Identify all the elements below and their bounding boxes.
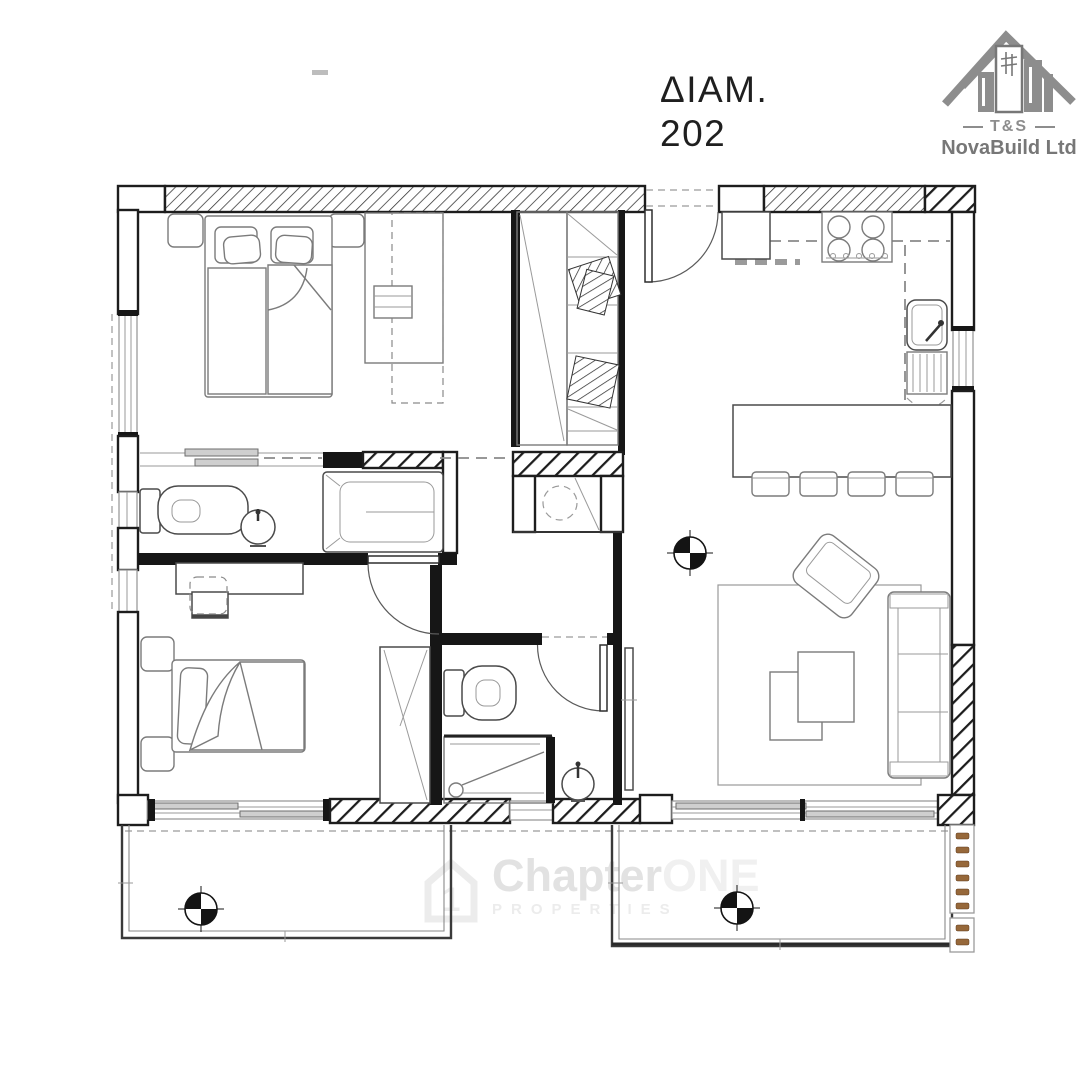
armchair <box>789 530 883 622</box>
bathroom-door <box>538 645 608 711</box>
wardrobe-master <box>365 213 443 403</box>
floor-plan <box>0 0 1080 1080</box>
bathtub <box>323 472 443 552</box>
window-bedroom2-bottom <box>148 799 330 821</box>
bedroom-second <box>141 563 430 803</box>
top-wall <box>118 186 975 212</box>
window-kitchen-right <box>952 326 974 391</box>
floorplan-page: ΔΙΑΜ. 202 T&S NovaBuild Ltd 1 <box>0 0 1080 1080</box>
kitchen-island <box>733 405 951 477</box>
toilet-ensuite <box>140 486 248 534</box>
window-bedroom2-left <box>119 570 137 612</box>
master-bedroom <box>168 213 443 403</box>
bathroom-main <box>444 666 594 803</box>
window-master-left <box>118 310 138 438</box>
closet-clothes-3 <box>567 356 619 408</box>
louver-strip <box>950 825 974 952</box>
hall-closet-shelves <box>567 212 621 445</box>
kitchen <box>722 212 951 496</box>
survey-marker-balcony-right <box>714 885 760 931</box>
kitchen-cabinet <box>722 212 770 259</box>
kitchen-sink <box>907 300 947 350</box>
wardrobe-second <box>380 647 430 803</box>
desk <box>176 563 303 618</box>
balcony-left <box>118 825 451 942</box>
survey-marker-balcony-left <box>178 886 224 932</box>
survey-marker-living <box>667 530 713 576</box>
double-bed <box>205 216 332 397</box>
coffee-tables <box>770 652 854 740</box>
sink-ensuite <box>241 509 275 546</box>
bedroom2-door <box>368 556 439 634</box>
entrance-door <box>645 210 718 282</box>
toilet-main <box>444 666 516 720</box>
living-room <box>667 530 950 785</box>
utility-shaft <box>513 452 623 532</box>
single-bed <box>141 637 305 771</box>
window-bathroom-bottom <box>510 801 553 820</box>
window-living-sliding <box>672 799 938 821</box>
left-wall <box>112 210 138 803</box>
dish-rack <box>907 352 947 408</box>
hall-wardrobe <box>517 212 567 445</box>
sofa <box>888 592 950 778</box>
ensuite-bathroom <box>140 472 443 552</box>
nightstand-left <box>168 214 203 247</box>
sink-main <box>562 762 594 802</box>
stove <box>822 212 892 262</box>
right-wall <box>952 212 974 795</box>
window-ensuite <box>119 492 137 528</box>
nightstand-right <box>329 214 364 247</box>
balcony-right <box>608 825 974 952</box>
corridor-radiator <box>621 648 637 790</box>
shower <box>444 736 555 803</box>
